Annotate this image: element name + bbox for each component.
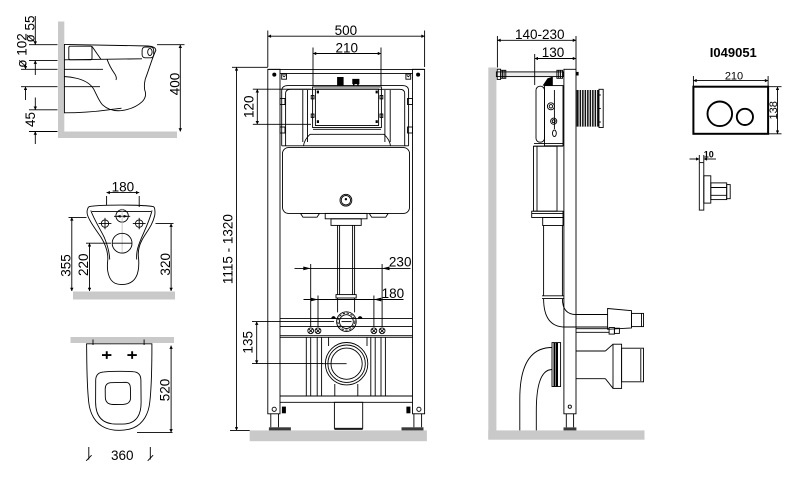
svg-text:320: 320 bbox=[158, 253, 173, 276]
svg-text:138: 138 bbox=[768, 101, 780, 119]
svg-text:210: 210 bbox=[725, 70, 743, 82]
svg-text:180: 180 bbox=[382, 286, 405, 301]
svg-text:I049051: I049051 bbox=[710, 45, 757, 60]
svg-text:500: 500 bbox=[335, 23, 358, 38]
svg-text:355: 355 bbox=[58, 254, 73, 277]
svg-text:130: 130 bbox=[542, 45, 565, 60]
svg-text:220: 220 bbox=[76, 253, 91, 276]
svg-text:230: 230 bbox=[389, 254, 412, 269]
svg-text:10: 10 bbox=[704, 150, 714, 160]
svg-text:140-230: 140-230 bbox=[515, 27, 565, 42]
svg-text:210: 210 bbox=[336, 41, 359, 56]
svg-text:360: 360 bbox=[111, 448, 134, 463]
svg-text:400: 400 bbox=[168, 73, 183, 96]
svg-text:520: 520 bbox=[157, 379, 172, 402]
svg-text:180: 180 bbox=[112, 180, 135, 195]
svg-text:ø 102: ø 102 bbox=[14, 33, 29, 68]
svg-text:1115 - 1320: 1115 - 1320 bbox=[220, 214, 235, 284]
svg-text:135: 135 bbox=[241, 331, 256, 354]
svg-text:120: 120 bbox=[241, 95, 256, 118]
svg-text:45: 45 bbox=[23, 112, 38, 127]
